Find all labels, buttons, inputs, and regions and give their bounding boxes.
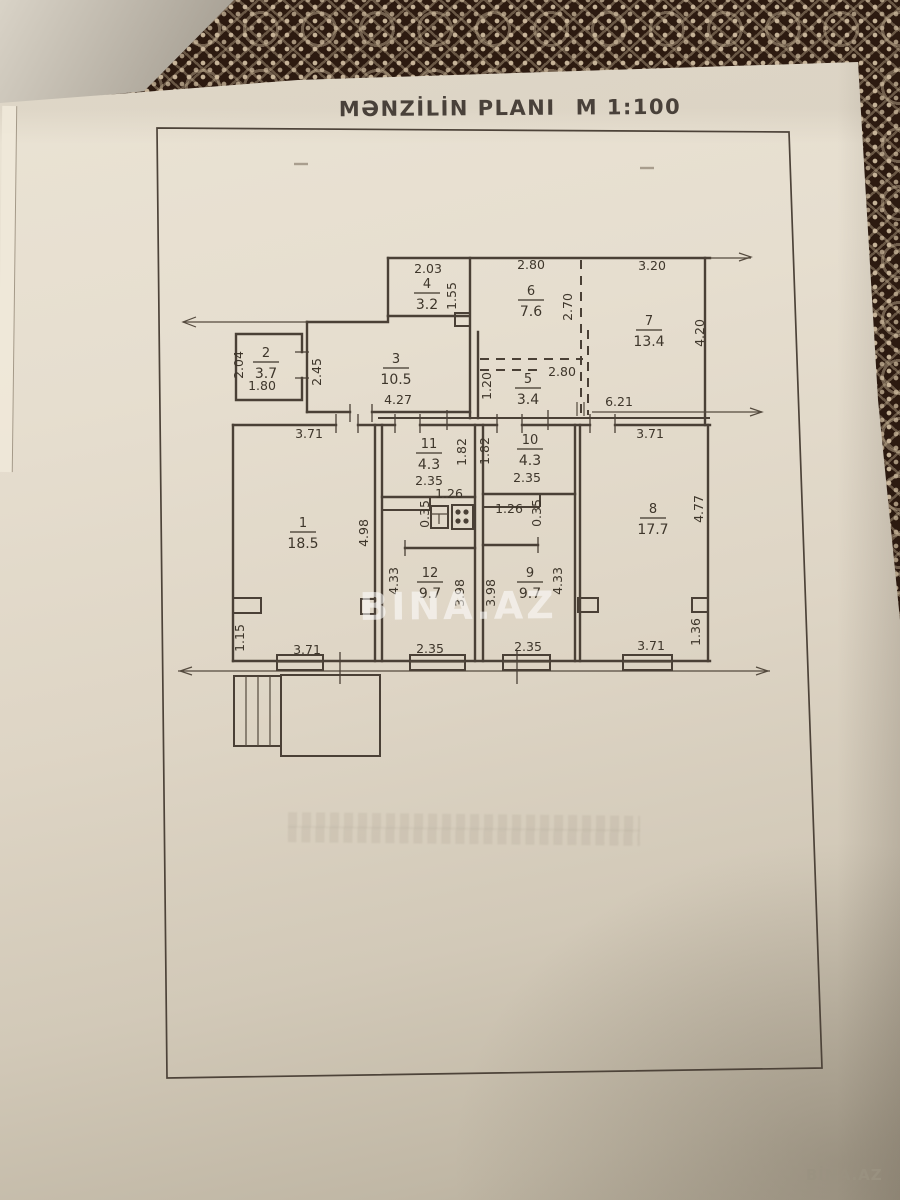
watermark-center: BINA.AZ [358,583,558,629]
photo-scene: MƏNZİLİN PLANI M 1:100 [0,0,900,1200]
plan-scale-text: M 1:100 [576,95,682,120]
plan-title: MƏNZİLİN PLANI M 1:100 [300,95,720,122]
watermark-corner: BİNA.AZ [806,1166,896,1184]
pencil-smudge [288,812,640,846]
plan-title-text: MƏNZİLİN PLANI [339,96,556,122]
